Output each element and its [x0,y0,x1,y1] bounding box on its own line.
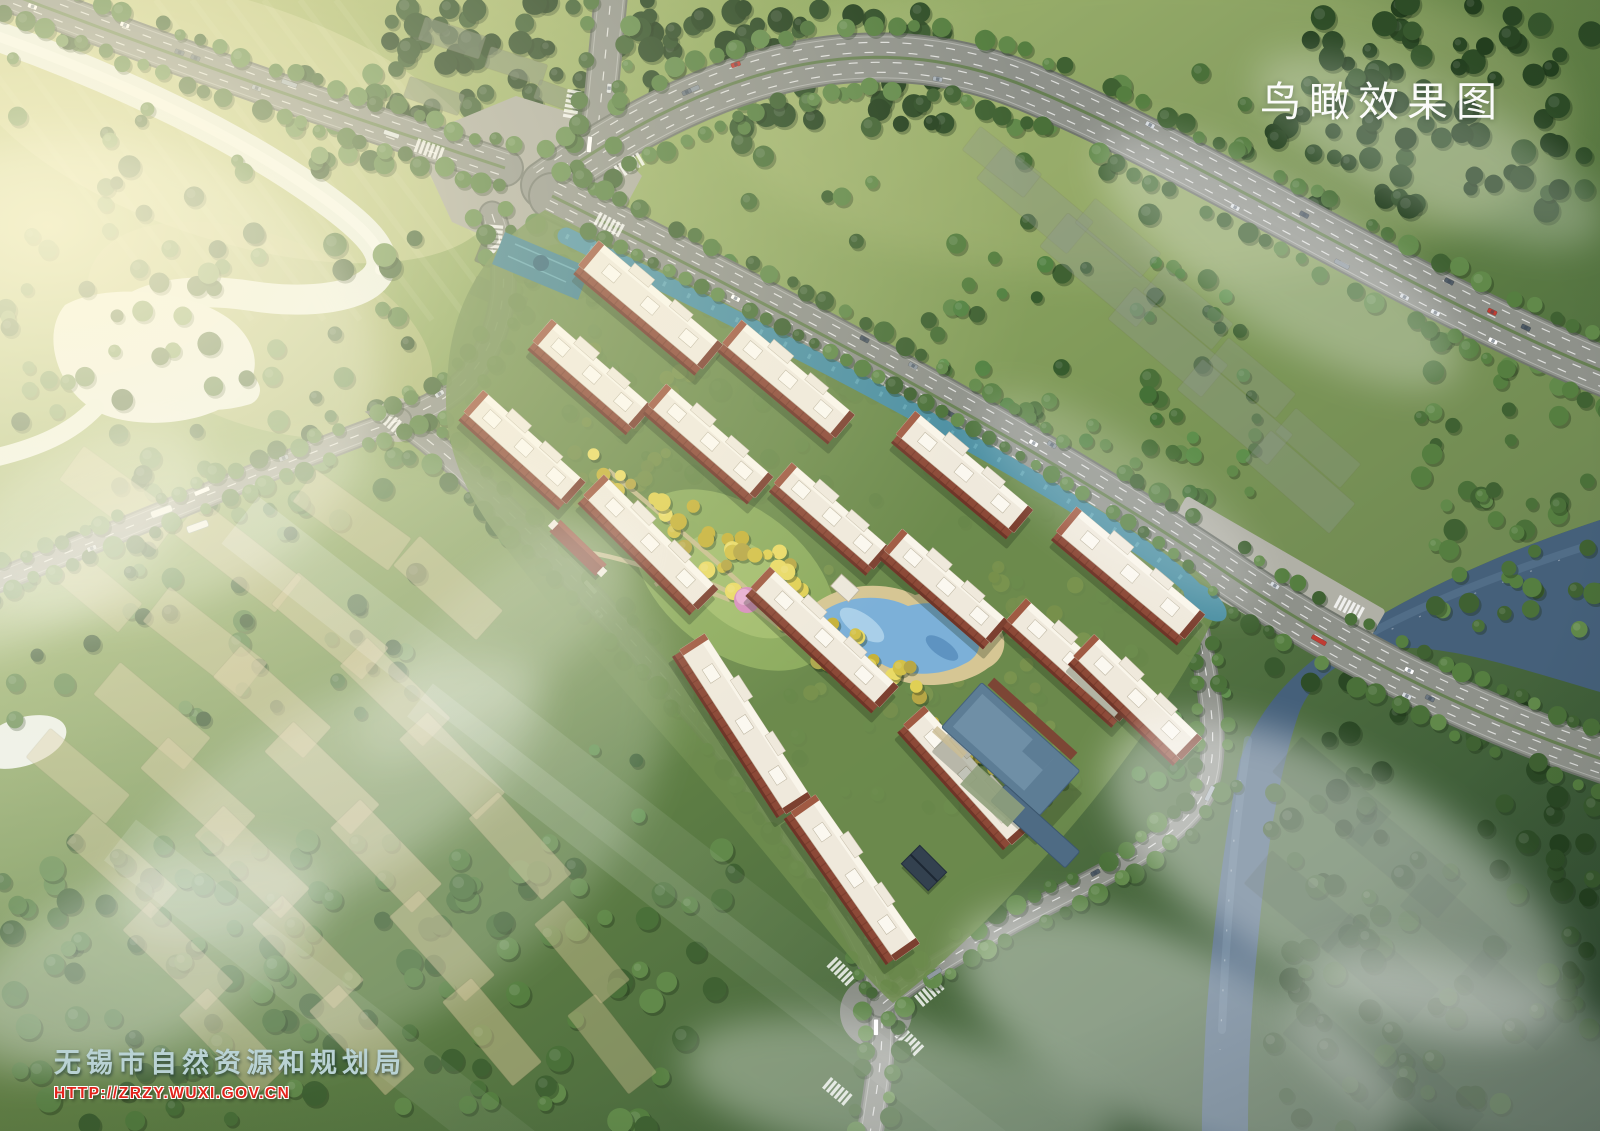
mist-haze [0,0,1600,1131]
aerial-rendering-page: 鸟瞰效果图 无锡市自然资源和规划局 HTTP://ZRZY.WUXI.GOV.C… [0,0,1600,1131]
bird-eye-render-canvas [0,0,1600,1131]
vignette [0,0,1600,1131]
